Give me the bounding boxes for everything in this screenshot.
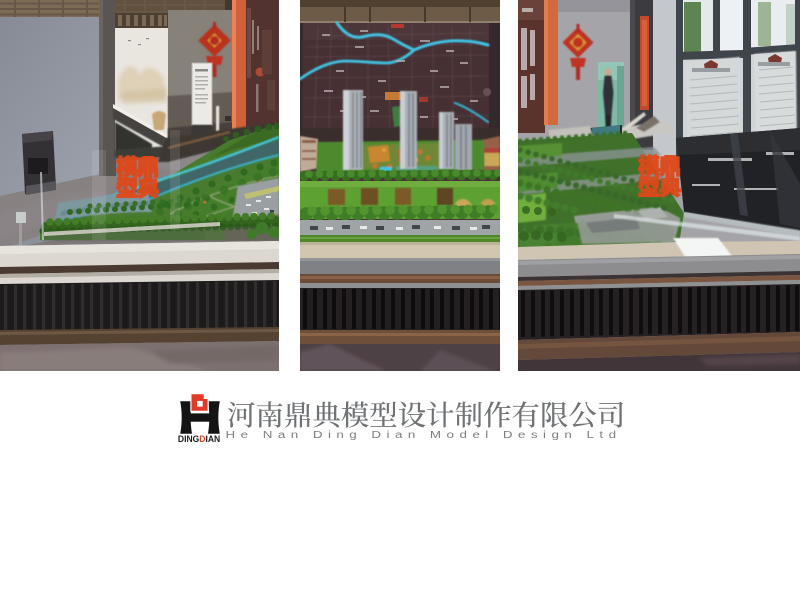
svg-text:He Nan Ding Dian Model Design: He Nan Ding Dian Model Design Ltd [226, 430, 622, 441]
